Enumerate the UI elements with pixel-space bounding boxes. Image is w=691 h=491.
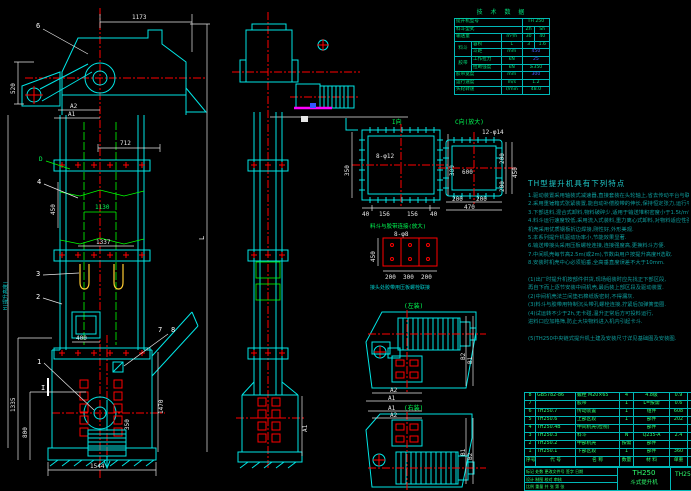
bom-name: 胶带 — [576, 401, 620, 409]
bom-name: 中间机壳(检视) — [576, 425, 620, 433]
svg-text:1335: 1335 — [10, 397, 17, 412]
svg-text:470: 470 — [464, 204, 475, 211]
bom-qty: 按需 — [620, 441, 634, 449]
belt-joint-note: 接头处胶带用压板螺栓联接 — [370, 284, 430, 291]
notes-title: TH型提升机具有下列特点 — [528, 178, 689, 189]
callout-8: 8 — [171, 326, 175, 334]
sig-row-1: 标记 处数 更改文件号 签字 日期 — [525, 468, 617, 476]
bom-remark — [688, 425, 691, 433]
title-block: 标记 处数 更改文件号 签字 日期 设计 制图 校对 审核 比例 重量 共 张 … — [524, 467, 691, 491]
bom-qty: 1 — [620, 409, 634, 417]
svg-text:(左装): (左装) — [404, 302, 423, 310]
cad-sheet: 1173 520 A2 A1 712 450 1130 1337 400 147… — [0, 0, 691, 491]
bom-row: 8 GB5782-86 螺栓 M20×65 4 4.8级 0.9 — [525, 393, 691, 401]
svg-text:B2: B2 — [460, 352, 467, 360]
bom-qty: 1 — [620, 417, 634, 425]
bom-row: 2 TH250.2 中部机壳 按需 部件 — [525, 441, 691, 449]
svg-text:600: 600 — [462, 169, 473, 176]
bom-code: TH250.6 — [536, 417, 576, 425]
svg-text:B1: B1 — [467, 356, 474, 364]
svg-text:1470: 1470 — [158, 399, 165, 414]
bom-code: GB5782-86 — [536, 393, 576, 401]
svg-text:8-φ8: 8-φ8 — [394, 231, 409, 238]
svg-text:B1: B1 — [460, 448, 467, 456]
plan-view-right-install: (右装) A1 A2 B1 B2 — [366, 404, 486, 490]
bom-remark — [688, 393, 691, 401]
svg-text:350: 350 — [344, 165, 351, 176]
bom-weight: 0.9 — [670, 393, 688, 401]
callout-4: 4 — [37, 178, 41, 186]
bom-no: 3 — [525, 433, 536, 441]
bom-header-row: 序号 代 号 名 称 数量 材 料 单重 备注 — [525, 457, 691, 467]
bom-weight — [670, 425, 688, 433]
c-view-title: C向(放大) — [455, 118, 484, 126]
bom-no: 7 — [525, 401, 536, 409]
bom-no: 1 — [525, 449, 536, 457]
bom-material: L=按需 — [634, 401, 670, 409]
spec-value: TH 250 — [522, 19, 549, 27]
dim-total-height: H(提升高度) — [2, 281, 9, 310]
note-line: 4.料斗运行速度较低,采用流入式装料,重力离心式卸料,对物料适应性强,输送量大,… — [528, 217, 689, 225]
svg-text:450: 450 — [512, 167, 519, 178]
bom-weight: 608 — [670, 409, 688, 417]
signature-grid: 标记 处数 更改文件号 签字 日期 设计 制图 校对 审核 比例 重量 共 张 … — [524, 467, 618, 491]
note-line: (1)出厂时提升机按部件供货,现场组装时应先找正下部区段, — [528, 276, 689, 284]
bom-row: 4 TH250.4B 中间机壳(检视) 部件 — [525, 425, 691, 433]
bom-remark — [688, 401, 691, 409]
bom-qty: 4 — [620, 393, 634, 401]
model-number: TH250 — [618, 468, 670, 479]
note-line: (5)TH250中央链式提升机土建及安装尺寸详见基础图及安装图. — [528, 335, 689, 343]
svg-text:350: 350 — [124, 419, 131, 430]
bom-material: 组件 — [634, 409, 670, 417]
left-elevation-view: 1173 520 A2 A1 712 450 1130 1337 400 147… — [2, 8, 210, 478]
svg-text:156: 156 — [407, 211, 418, 218]
note-line: 7.中间机壳每节高2.5m(或2m),节数由用户按提升高度H选取. — [528, 251, 689, 259]
blue-mark — [310, 103, 316, 108]
svg-text:800: 800 — [22, 427, 29, 438]
bom-material: 部件 — [634, 425, 670, 433]
notes-block: TH型提升机具有下列特点 1.驱动装置采用轴装式减速器,直接套装在头轮轴上,省去… — [528, 178, 689, 394]
note-line — [528, 326, 689, 334]
bom-no: 8 — [525, 393, 536, 401]
bom-remark — [688, 441, 691, 449]
callout-6: 6 — [36, 22, 40, 30]
i-view-holes: 8-φ12 — [376, 153, 394, 160]
svg-text:450: 450 — [50, 204, 57, 215]
spec-table: 技 术 数 据 提升机型号 TH 250 料斗型式 ZhSh 输送量 m³/h … — [454, 7, 550, 95]
bom-name: 料斗 — [576, 433, 620, 441]
bom-no: 4 — [525, 425, 536, 433]
bom-code: TH250.7 — [536, 409, 576, 417]
reducer — [296, 84, 320, 108]
svg-text:A2: A2 — [390, 387, 398, 394]
svg-text:400: 400 — [76, 335, 87, 342]
bom-remark — [688, 449, 691, 457]
bom-code: TH250.1 — [536, 449, 576, 457]
dim-motor-height: 520 — [10, 83, 17, 94]
callout-7: 7 — [158, 326, 162, 334]
i-view-title: I向 — [392, 118, 402, 126]
note-line: 6.输送带接头采用压板螺栓连接,连接强度高,更换料斗方便. — [528, 242, 689, 250]
section-mark-i: I — [41, 384, 45, 392]
bom-material: 部件 — [634, 417, 670, 425]
bom-weight: 0.6 — [670, 401, 688, 409]
bom-weight: 202 — [670, 417, 688, 425]
bom-name: 上部区段 — [576, 417, 620, 425]
sig-row-2: 设计 制图 校对 审核 — [525, 476, 617, 484]
bom-row: 3 TH250.3 料斗 N Q235-A 2.4 — [525, 433, 691, 441]
note-line: 机壳采用优质钢板折边焊接,刚性好,外形美观. — [528, 226, 689, 234]
svg-text:B2: B2 — [467, 452, 474, 460]
bom-no: 6 — [525, 409, 536, 417]
note-line: (3)料斗与胶带用特制沉头带孔螺栓连接,拧紧后加弹簧垫圈. — [528, 301, 689, 309]
dim-pitch: 1130 — [95, 204, 110, 211]
spec-label: 提升机型号 — [455, 19, 523, 27]
note-line: 进料口应加格筛,防止大块物料进入机内引起卡斗. — [528, 318, 689, 326]
dim-top-width: 1173 — [132, 14, 147, 21]
sig-row-3: 比例 重量 共 张 第 张 — [525, 483, 617, 490]
bom-remark — [688, 433, 691, 441]
flange-band — [54, 160, 150, 171]
dim-a1: A1 — [68, 111, 76, 118]
detail-belt-joint: 料斗与胶带连接(放大) 8-φ8 450 200 300 200 接头处胶带用压… — [370, 222, 437, 291]
bom-material: 4.8级 — [634, 393, 670, 401]
bom-no: 2 — [525, 441, 536, 449]
svg-text:200: 200 — [385, 274, 396, 281]
bom-remark — [688, 417, 691, 425]
bom-weight — [670, 441, 688, 449]
belt-joint-title: 料斗与胶带连接(放大) — [370, 222, 426, 230]
svg-text:450: 450 — [370, 251, 377, 262]
bom-row: 1 TH250.1 下部区段 1 部件 360 — [525, 449, 691, 457]
callout-d: D — [39, 156, 43, 163]
svg-text:200: 200 — [476, 196, 487, 203]
note-line: 8.安装时机壳中心必须铅垂,全高垂直度误差不大于10mm. — [528, 259, 689, 267]
note-line: 5.本系列提升机驱动功率小,节能效果显著. — [528, 234, 689, 242]
product-name: 斗式提升机 — [618, 479, 670, 488]
bom-name: 中部机壳 — [576, 441, 620, 449]
note-line: 2.采用重锤箱式张紧装置,能自动补偿胶带的伸长,保持恒定张力,运行平稳可靠,胶带… — [528, 200, 689, 208]
detail-c-view: C向(放大) 12-φ14 600 200 200 450 200 200 47… — [438, 118, 519, 211]
svg-text:300: 300 — [403, 274, 414, 281]
dim-mid-a1: A1 — [302, 424, 309, 432]
svg-text:200: 200 — [421, 274, 432, 281]
parts-list: 8 GB5782-86 螺栓 M20×65 4 4.8级 0.9 7 胶带 1 … — [524, 392, 691, 467]
bom-material: 部件 — [634, 441, 670, 449]
bom-code: TH250.3 — [536, 433, 576, 441]
bom-row: 7 胶带 1 L=按需 0.6 — [525, 401, 691, 409]
svg-text:A1: A1 — [388, 405, 396, 412]
bom-remark — [688, 409, 691, 417]
svg-text:156: 156 — [379, 211, 390, 218]
bom-no: 5 — [525, 417, 536, 425]
svg-text:40: 40 — [430, 211, 438, 218]
dim-a2: A2 — [70, 103, 78, 110]
bom-qty: N — [620, 433, 634, 441]
svg-text:200: 200 — [499, 153, 506, 164]
callout-3: 3 — [36, 270, 40, 278]
bom-row: 6 TH250.7 传动装置 1 组件 608 — [525, 409, 691, 417]
bom-material: Q235-A — [634, 433, 670, 441]
drawing-title-cell: TH250 斗式提升机 — [618, 467, 671, 491]
svg-text:1337: 1337 — [96, 239, 111, 246]
bom-code: TH250.2 — [536, 441, 576, 449]
svg-text:200: 200 — [452, 196, 463, 203]
dim-mid-width: 712 — [120, 140, 131, 147]
note-line: 再自下而上逐节安装中间机壳,最后装上部区段及驱动装置. — [528, 284, 689, 292]
bom-material: 部件 — [634, 449, 670, 457]
callout-2: 2 — [36, 293, 40, 301]
inlet-chute — [152, 312, 198, 376]
bom-weight: 360 — [670, 449, 688, 457]
svg-text:200: 200 — [499, 181, 506, 192]
note-line — [528, 268, 689, 276]
bom-name: 传动装置 — [576, 409, 620, 417]
note-line: 3.下部进料,混合式卸料,物料破碎少,适用于输送堆积密度小于1.5t/m³的粉状… — [528, 209, 689, 217]
plan-view-left-install: (左装) A2 A1 B2 B1 — [366, 302, 486, 402]
bom-code — [536, 401, 576, 409]
note-line: 1.驱动装置采用轴装式减速器,直接套装在头轮轴上,省去传动平台与联轴器,结构紧凑… — [528, 192, 689, 200]
note-line: (2)中间机壳法兰间垫石棉纸板密封,不得漏灰. — [528, 293, 689, 301]
bom-name: 螺栓 M20×65 — [576, 393, 620, 401]
buckets — [80, 264, 123, 289]
drawing-number: TH250.0 — [671, 467, 691, 491]
svg-text:A1: A1 — [388, 395, 396, 402]
svg-text:A2: A2 — [390, 412, 398, 419]
bom-qty: 1 — [620, 401, 634, 409]
bom-qty: 1 — [620, 449, 634, 457]
bom-weight: 2.4 — [670, 433, 688, 441]
c-view-holes: 12-φ14 — [482, 129, 504, 136]
svg-text:1544: 1544 — [90, 463, 105, 470]
svg-text:L: L — [198, 236, 206, 240]
bom-name: 下部区段 — [576, 449, 620, 457]
bom-row: 5 TH250.6 上部区段 1 部件 202 — [525, 417, 691, 425]
callout-1: 1 — [37, 358, 41, 366]
bom-code: TH250.4B — [536, 425, 576, 433]
note-line: (4)试运转不少于2h,无卡碰,温升正常后方可投料运行, — [528, 310, 689, 318]
notes-list: 1.驱动装置采用轴装式减速器,直接套装在头轮轴上,省去传动平台与联轴器,结构紧凑… — [528, 192, 689, 343]
bom-qty — [620, 425, 634, 433]
spec-title: 技 术 数 据 — [454, 7, 550, 16]
svg-text:40: 40 — [362, 211, 370, 218]
